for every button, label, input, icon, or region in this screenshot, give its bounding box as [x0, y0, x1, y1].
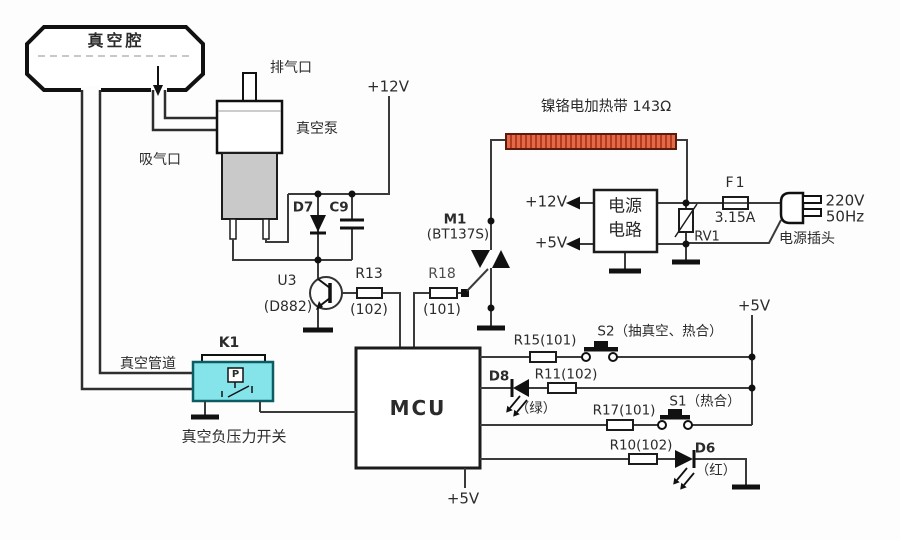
heater-label: 镍铬电加热带 143Ω: [541, 100, 671, 115]
capacitor-c9-symbol: [340, 220, 364, 228]
m1-label: M1: [444, 213, 467, 227]
rail-5v-label: +5V: [738, 299, 770, 314]
plug-prong-bottom: [803, 209, 821, 216]
d6-color-label: （红）: [696, 464, 737, 478]
button-s1-symbol: [658, 409, 692, 429]
fuse-f1-symbol: [723, 197, 748, 209]
power-plug-symbol: [781, 193, 821, 223]
psu-label-line2: 电路: [608, 223, 642, 240]
diode-d7-symbol: [310, 215, 326, 233]
d7-label: D7: [293, 201, 314, 215]
pipe-to-pump-upper: [165, 90, 217, 118]
pipe-to-switch-outer: [82, 90, 193, 389]
pump-label: 真空泵: [296, 122, 338, 136]
chamber-label: 真空腔: [87, 33, 144, 49]
exhaust-port-label: 排气口: [270, 61, 312, 75]
pump-pin-left: [230, 219, 236, 239]
mains-voltage-label: 220V: [826, 194, 865, 209]
r18-label: R18: [428, 267, 456, 281]
vacuum-pump: [217, 73, 282, 239]
button-s2-symbol: [582, 341, 618, 361]
pressure-switch-k1: [193, 355, 273, 416]
resistor-r10-symbol: [629, 454, 657, 464]
r17-label: R17(101): [593, 404, 656, 418]
exhaust-stub: [243, 73, 256, 103]
pipe-to-switch-inner: [100, 90, 193, 373]
resistor-r15-symbol: [530, 352, 556, 362]
rv1-label: RV1: [694, 231, 720, 244]
supply-12v-label: +12V: [367, 80, 409, 95]
f1-rating-label: 3.15A: [715, 211, 756, 225]
psu-12v-label: +12V: [525, 195, 567, 210]
psu-5v-label: +5V: [535, 236, 567, 251]
resistor-r17-symbol: [607, 420, 633, 430]
r13-value-label: (102): [350, 303, 388, 317]
s1-label: S1（热合）: [669, 395, 740, 409]
psu-5v-arrow: [566, 238, 580, 251]
vacuum-pipes: [82, 90, 217, 389]
triac-m1-symbol: [471, 250, 510, 268]
u3-label: U3: [277, 274, 296, 288]
c9-label: C9: [329, 201, 348, 215]
resistor-r18-symbol: [430, 288, 457, 298]
pipe-label: 真空管道: [120, 357, 176, 371]
d8-color-label: （绿）: [516, 402, 557, 416]
k1-label: K1: [219, 336, 240, 350]
r18-value-label: (101): [423, 303, 461, 317]
intake-port-label: 吸气口: [139, 153, 181, 167]
pump-pin-right: [263, 219, 269, 239]
chamber-opening-left: [81, 86, 101, 94]
psu-label-line1: 电源: [608, 199, 642, 216]
r11-label: R11(102): [535, 368, 598, 382]
plug-prong-top: [803, 196, 821, 203]
plug-label: 电源插头: [779, 232, 835, 246]
vacuum-switch-label: 真空负压力开关: [181, 430, 286, 445]
p-sensor-label: P: [232, 370, 239, 380]
resistor-r11-symbol: [548, 383, 576, 393]
heater-band: [505, 133, 677, 150]
d6-label: D6: [695, 442, 716, 456]
r13-label: R13: [355, 267, 383, 281]
resistor-r13-symbol: [357, 288, 382, 298]
pump-head: [217, 101, 282, 153]
mcu-5v-label: +5V: [447, 492, 479, 507]
r15-label: R15(101): [514, 334, 577, 348]
led-d6-symbol: [673, 450, 694, 490]
d8-label: D8: [489, 370, 510, 384]
psu-12v-arrow: [566, 197, 580, 210]
led-d6-glow-arrows: [673, 468, 694, 490]
pump-motor: [222, 153, 277, 219]
circuit-diagram: 真空腔 排气口 真空泵 吸气口 +12V D7 C9 U3 (D882) R13…: [0, 0, 900, 540]
pipe-to-pump-lower: [153, 90, 217, 130]
s2-label: S2（抽真空、热合）: [597, 325, 722, 339]
mcu-label: MCU: [390, 398, 447, 418]
f1-label: F1: [726, 176, 747, 190]
mains-frequency-label: 50Hz: [826, 210, 864, 225]
transistor-u3-symbol: [310, 277, 342, 310]
r10-label: R10(102): [610, 439, 673, 453]
m1-part-label: (BT137S): [427, 228, 489, 242]
u3-part-label: (D882): [264, 300, 312, 314]
